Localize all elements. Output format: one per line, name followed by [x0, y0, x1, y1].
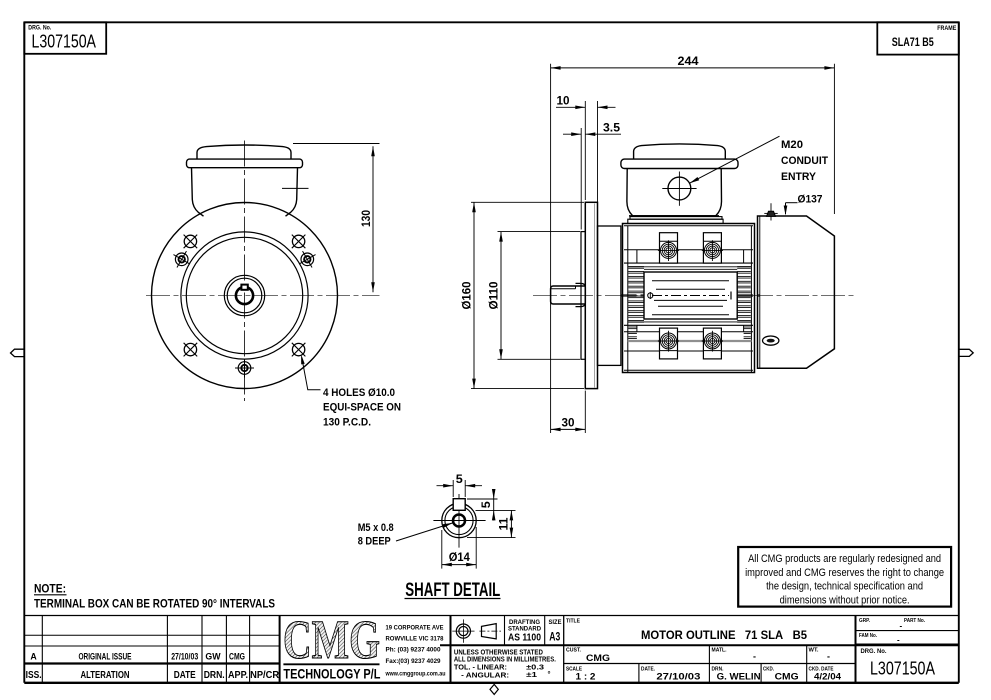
svg-text:EQUI-SPACE ON: EQUI-SPACE ON: [323, 402, 401, 414]
svg-text:3.5: 3.5: [603, 123, 621, 135]
svg-text:10: 10: [557, 96, 570, 108]
svg-text:4 HOLES Ø10.0: 4 HOLES Ø10.0: [323, 387, 395, 399]
svg-text:DATE: DATE: [174, 669, 196, 681]
svg-text:19 CORPORATE AVE: 19 CORPORATE AVE: [386, 624, 444, 631]
svg-text:-: -: [900, 622, 903, 631]
svg-text:CMG: CMG: [283, 609, 380, 670]
svg-text:www.cmggroup.com.au: www.cmggroup.com.au: [385, 670, 446, 677]
svg-text:11: 11: [499, 517, 511, 531]
svg-text:dimensions without prior notic: dimensions without prior notice.: [780, 594, 910, 606]
svg-text:- ANGULAR:: - ANGULAR:: [461, 673, 509, 680]
svg-text:30: 30: [562, 418, 575, 430]
svg-text:GRP.: GRP.: [859, 618, 871, 624]
svg-text:TERMINAL BOX CAN BE ROTATED 90: TERMINAL BOX CAN BE ROTATED 90° INTERVAL…: [34, 597, 275, 611]
svg-text:8 DEEP: 8 DEEP: [358, 535, 391, 547]
svg-text:130: 130: [361, 210, 373, 227]
svg-text:improved and CMG reserves the: improved and CMG reserves the right to c…: [745, 567, 944, 579]
svg-text:UNLESS OTHERWISE STATED: UNLESS OTHERWISE STATED: [454, 649, 543, 656]
svg-text:4/2/04: 4/2/04: [814, 671, 841, 681]
svg-text:DRN.: DRN.: [204, 669, 225, 681]
svg-text:SLA71 B5: SLA71 B5: [892, 35, 934, 49]
svg-text:APP.: APP.: [228, 669, 248, 681]
svg-text:MATL.: MATL.: [712, 648, 727, 654]
svg-text:Ø14: Ø14: [449, 552, 471, 564]
svg-text:ISS.: ISS.: [26, 669, 42, 681]
svg-text:SIZE: SIZE: [549, 619, 563, 626]
svg-text:Ø160: Ø160: [461, 282, 473, 310]
svg-text:°: °: [548, 670, 551, 679]
svg-text:L307150A: L307150A: [870, 657, 935, 678]
svg-text:NOTE:: NOTE:: [34, 582, 66, 596]
svg-text:M5 x 0.8: M5 x 0.8: [358, 522, 394, 534]
svg-text:5: 5: [456, 474, 464, 486]
svg-text:CMG: CMG: [586, 653, 610, 663]
svg-text:244: 244: [678, 56, 700, 68]
svg-text:All CMG products are regularly: All CMG products are regularly redesigne…: [748, 553, 941, 565]
svg-text:GW: GW: [205, 651, 221, 661]
svg-text:CUST.: CUST.: [566, 648, 581, 654]
svg-text:WT.: WT.: [809, 648, 819, 654]
svg-text:the design, technical specific: the design, technical specification and: [766, 581, 923, 593]
svg-text:DATE.: DATE.: [641, 666, 655, 672]
svg-text:1 : 2: 1 : 2: [576, 671, 596, 681]
svg-text:ENTRY: ENTRY: [781, 171, 817, 183]
svg-text:ALTERATION: ALTERATION: [81, 669, 130, 681]
svg-text:-: -: [753, 652, 756, 662]
svg-text:AS 1100: AS 1100: [508, 633, 541, 644]
svg-text:CONDUIT: CONDUIT: [781, 155, 828, 167]
svg-text:FRAME: FRAME: [937, 25, 956, 32]
svg-text:ROWVILLE VIC 3178: ROWVILLE VIC 3178: [386, 636, 445, 643]
svg-text:CKD.: CKD.: [763, 666, 774, 672]
svg-text:NP/CR: NP/CR: [250, 669, 279, 681]
svg-text:CMG: CMG: [775, 671, 799, 681]
svg-text:Ø137: Ø137: [798, 193, 823, 205]
svg-text:-: -: [827, 652, 830, 662]
svg-text:-: -: [897, 635, 900, 644]
svg-text:G. WELIN: G. WELIN: [717, 671, 761, 681]
svg-text:STANDARD: STANDARD: [508, 626, 541, 633]
svg-text:A: A: [30, 651, 37, 661]
svg-text:Ø110: Ø110: [488, 282, 500, 310]
svg-text:M20: M20: [781, 139, 803, 151]
svg-text:±1: ±1: [526, 670, 537, 679]
svg-text:DRG. No.: DRG. No.: [861, 648, 887, 655]
svg-text:TECHNOLOGY P/L: TECHNOLOGY P/L: [283, 667, 380, 683]
svg-text:27/10/03: 27/10/03: [656, 671, 700, 681]
svg-text:TITLE: TITLE: [566, 618, 580, 624]
svg-text:130 P.C.D.: 130 P.C.D.: [323, 416, 371, 428]
svg-text:TOL. - LINEAR:: TOL. - LINEAR:: [454, 665, 507, 672]
svg-text:27/10/03: 27/10/03: [171, 651, 198, 661]
svg-text:CMG: CMG: [229, 651, 245, 661]
svg-text:ORIGINAL ISSUE: ORIGINAL ISSUE: [79, 651, 132, 661]
svg-text:L307150A: L307150A: [32, 30, 97, 51]
svg-text:SHAFT DETAIL: SHAFT DETAIL: [405, 579, 500, 601]
svg-text:Ph: (03) 9237 4000: Ph: (03) 9237 4000: [386, 647, 442, 654]
svg-text:MOTOR OUTLINE 71 SLA B5: MOTOR OUTLINE 71 SLA B5: [641, 628, 807, 642]
svg-text:FAM No.: FAM No.: [859, 633, 877, 639]
svg-text:PART No.: PART No.: [904, 618, 925, 624]
svg-text:Fax:(03) 9237 4029: Fax:(03) 9237 4029: [386, 658, 442, 665]
svg-text:5: 5: [481, 501, 493, 509]
svg-text:A3: A3: [549, 630, 560, 644]
